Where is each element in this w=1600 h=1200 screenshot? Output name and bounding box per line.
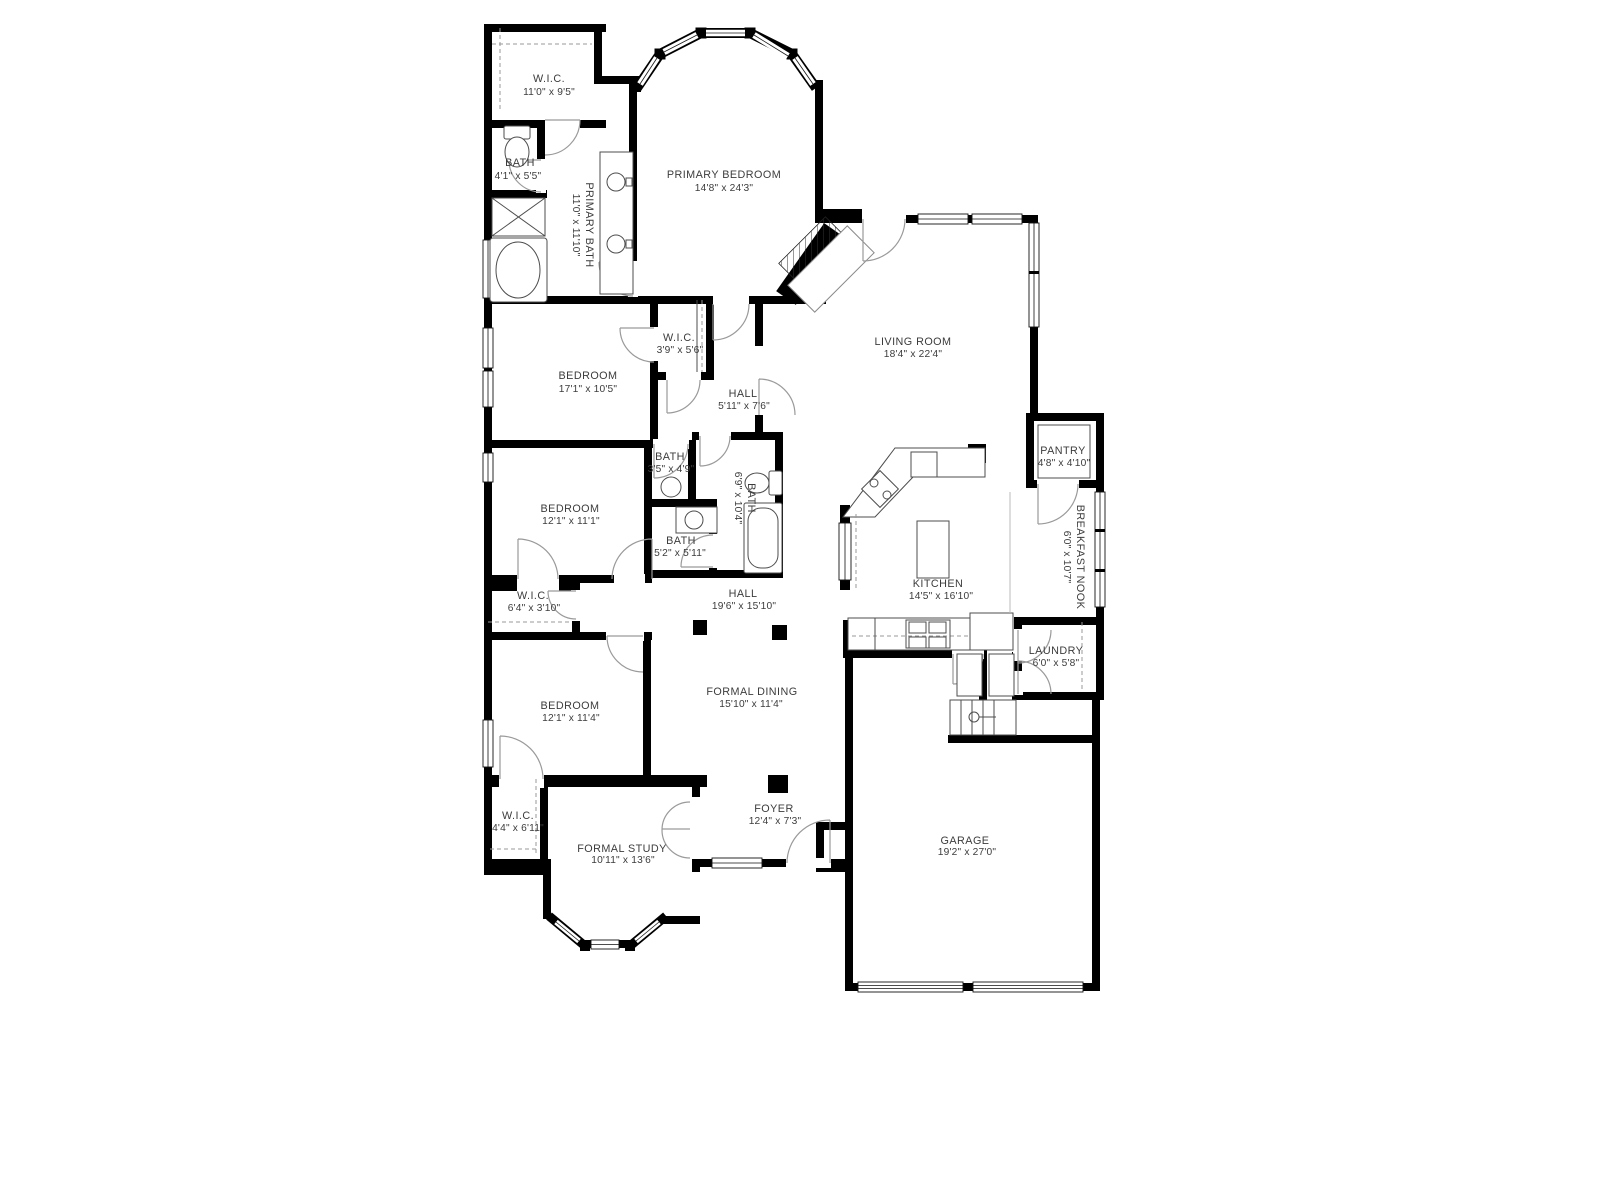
room-label: W.I.C. [502, 810, 534, 822]
room-dims: 4'4" x 6'11" [492, 823, 544, 834]
room-dims: 4'1" x 5'5" [495, 171, 542, 182]
door-wic-39 [667, 380, 700, 413]
room-label: W.I.C. [663, 332, 695, 344]
room-dims: 6'0" x 10'7" [1061, 531, 1072, 584]
room-label: W.I.C. [517, 590, 549, 602]
room-dims: 10'11" x 13'6" [591, 855, 655, 866]
column [768, 775, 788, 793]
refrigerator [970, 613, 1013, 650]
room-label: BEDROOM [541, 700, 600, 712]
floor-plan-svg: W.I.C. 11'0" x 9'5" BATH 4'1" x 5'5" PRI… [0, 0, 1600, 1200]
room-dims: 11'0" x 9'5" [523, 87, 575, 98]
sink [685, 511, 703, 529]
room-dims: 17'1" x 10'5" [559, 384, 618, 395]
bay-window-wall [637, 33, 816, 88]
room-label: HALL [729, 388, 758, 400]
room-label: GARAGE [941, 835, 990, 847]
room-label: BATH [655, 451, 685, 463]
room-dims: 12'4" x 7'3" [749, 816, 802, 827]
column [693, 620, 707, 635]
room-label: BEDROOM [559, 370, 618, 382]
door-pantry [1038, 484, 1078, 524]
room-label: FORMAL DINING [706, 686, 797, 698]
room-dims: 6'4" x 3'10" [508, 603, 561, 614]
toilet [769, 471, 782, 495]
floor-plan-canvas: W.I.C. 11'0" x 9'5" BATH 4'1" x 5'5" PRI… [0, 0, 1600, 1200]
room-dims: 4'8" x 4'10" [1038, 458, 1091, 469]
room-label: FOYER [754, 803, 793, 815]
room-label: FORMAL STUDY [577, 843, 667, 855]
room-label: PRIMARY BATH [583, 182, 595, 267]
door-bedroom-closet [518, 539, 558, 579]
room-dims: 6'9" x 10'4" [732, 472, 743, 525]
room-label: BREAKFAST NOOK [1074, 505, 1086, 610]
room-dims: 14'8" x 24'3" [695, 183, 754, 194]
mud-cabinet [957, 654, 982, 696]
room-dims: 14'5" x 16'10" [909, 591, 974, 602]
room-dims: 12'1" x 11'1" [542, 516, 600, 527]
room-dims: 18'4" x 22'4" [884, 349, 943, 360]
column [772, 625, 787, 640]
kitchen-island [917, 521, 949, 578]
room-dims: 19'2" x 27'0" [938, 847, 997, 858]
room-dims: 5'11" x 7'6" [718, 401, 770, 412]
room-label: PANTRY [1040, 445, 1086, 457]
room-label: HALL [729, 588, 758, 600]
room-dims: 3'9" x 5'6" [657, 345, 704, 356]
room-dims: 3'5" x 4'9" [648, 464, 695, 475]
door-bedroom-17 [620, 328, 654, 362]
room-label: LIVING ROOM [875, 336, 952, 348]
room-dims: 5'2" x 5'11" [654, 548, 706, 559]
room-dims: 11'0" x 11'10" [570, 194, 581, 257]
room-label: W.I.C. [533, 73, 565, 85]
room-label: KITCHEN [913, 578, 964, 590]
room-label: BATH [505, 157, 535, 169]
room-label: BATH [745, 483, 757, 513]
sink [607, 173, 625, 191]
room-dims: 12'1" x 11'4" [542, 713, 600, 724]
room-label: BEDROOM [541, 503, 600, 515]
room-label: BATH [666, 535, 696, 547]
stairs [950, 700, 1016, 735]
room-labels: W.I.C. 11'0" x 9'5" BATH 4'1" x 5'5" PRI… [492, 73, 1090, 866]
mud-cabinet [989, 654, 1014, 696]
door-bedroom-114 [607, 636, 643, 672]
door-wic-44 [500, 736, 543, 779]
door-primary-bedroom [713, 304, 749, 340]
sink [661, 477, 681, 497]
sink [607, 235, 625, 253]
room-dims: 6'0" x 5'8" [1033, 658, 1080, 669]
room-label: PRIMARY BEDROOM [667, 169, 781, 181]
room-label: LAUNDRY [1029, 645, 1084, 657]
kitchen-sink [911, 452, 937, 477]
room-dims: 19'6" x 15'10" [712, 601, 777, 612]
room-dims: 15'10" x 11'4" [719, 699, 783, 710]
